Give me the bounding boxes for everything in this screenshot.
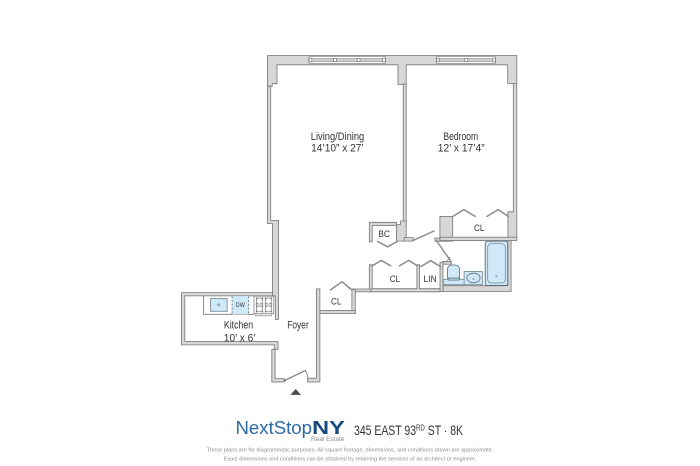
svg-text:LIN: LIN [424, 274, 437, 285]
svg-text:Kitchen: Kitchen [224, 319, 253, 331]
svg-text:CL: CL [331, 297, 342, 308]
svg-text:Foyer: Foyer [287, 319, 309, 331]
svg-text:Real Estate: Real Estate [311, 436, 345, 443]
svg-text:Exact dimensions and condition: Exact dimensions and conditions can be o… [224, 457, 477, 463]
svg-text:CL: CL [390, 274, 401, 285]
svg-text:These plans are for diagrammat: These plans are for diagrammatic purpose… [207, 448, 494, 454]
svg-text:CL: CL [474, 223, 485, 234]
svg-text:NextStop: NextStop [236, 418, 313, 438]
svg-text:10’ x 6’: 10’ x 6’ [224, 333, 256, 345]
svg-text:NY: NY [312, 418, 345, 438]
svg-text:14’10” x 27’: 14’10” x 27’ [311, 142, 364, 154]
svg-text:12’ x 17’4”: 12’ x 17’4” [438, 142, 485, 154]
svg-text:345 EAST 93RD ST · 8K: 345 EAST 93RD ST · 8K [354, 422, 463, 438]
svg-text:DW: DW [236, 302, 245, 309]
svg-text:BC: BC [378, 229, 390, 240]
